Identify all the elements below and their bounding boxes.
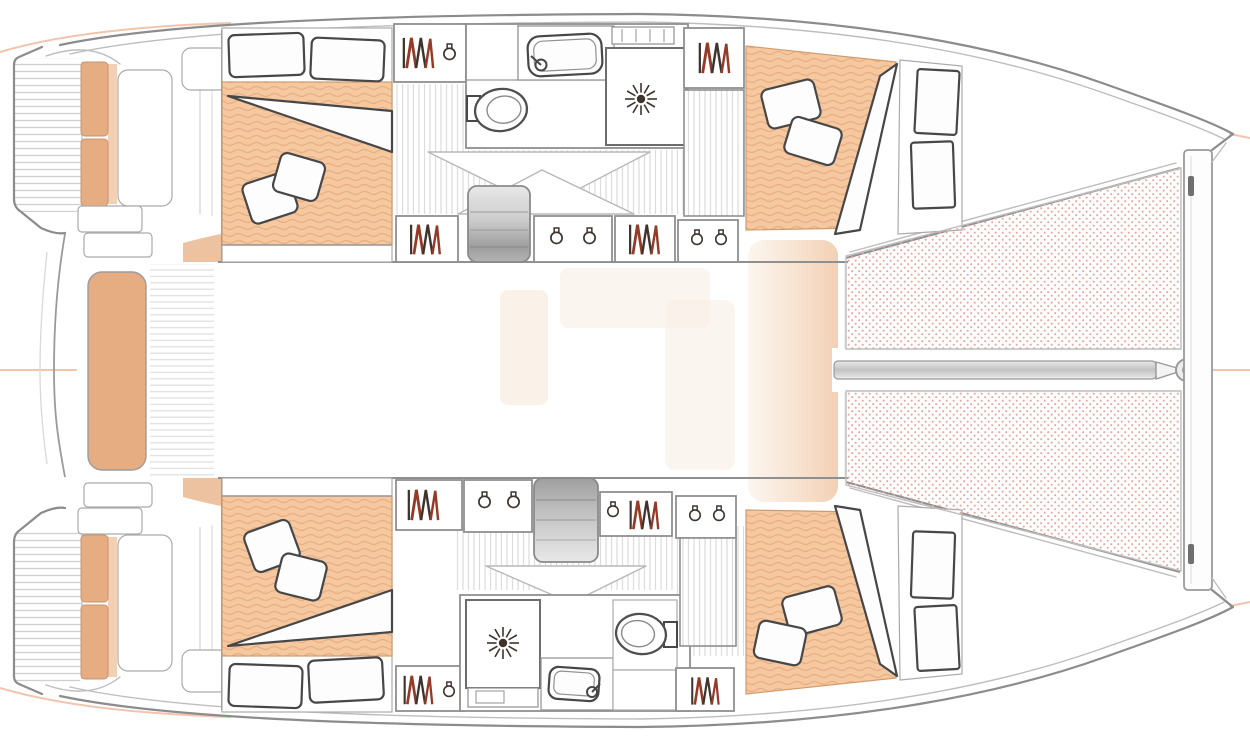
transom-seat-sliver [108,64,117,204]
saloon [183,233,845,507]
cockpit-deck-planks [150,264,214,476]
helm-console [118,535,172,671]
cockpit-step [78,206,142,232]
crossbeam-bracket [1188,544,1194,564]
saloon-ghost-seat [665,300,735,470]
storage-locker [678,220,738,262]
crossbeam-bracket [1188,176,1194,196]
foot-cushion [228,664,302,709]
transom-seat-cushion [81,139,108,206]
transom-seat-sliver [108,537,117,677]
forward-crossbeam [1184,150,1212,590]
helm-console [118,70,172,206]
cockpit-aft-edge [54,234,65,477]
trampoline-net-upper [846,168,1181,349]
starboard-head [460,595,690,711]
storage-locker [534,216,612,262]
starboard-aft-cabin [222,478,392,712]
headboard-cushion [228,33,304,78]
cockpit-step [84,483,152,507]
saloon-ghost-galley [500,290,548,405]
transom-starboard [78,483,228,692]
headboard-cushion [310,37,385,81]
transom-port [78,48,228,257]
transom-seat-cushion [81,605,108,679]
slatted-dresser [680,538,736,646]
vent-grate [612,27,674,44]
shelf-cushion [911,531,955,598]
cockpit-corner-seat-upper [183,233,226,262]
shelf-cushion [911,141,955,208]
counter [613,670,677,710]
cockpit-bench [88,272,146,470]
wardrobe [396,216,458,262]
bowsprit [834,361,1156,379]
cockpit-step [84,233,152,257]
shelf-cushion [914,69,959,135]
floorplan-drawing [0,0,1250,741]
trampoline-net-lower [846,391,1181,571]
cockpit-step [78,508,142,534]
slatted-dresser [684,90,744,216]
storage-locker [676,496,736,538]
cockpit-corner-seat-lower [183,478,226,507]
catamaran-floorplan [0,0,1250,741]
saloon-forward-lounge-pad [748,240,838,502]
companionway-steps [468,186,530,262]
storage-locker [464,480,532,532]
port-forward-cabin [684,28,962,234]
aft-cockpit [40,234,214,477]
transom-seat-cushion [81,62,108,136]
port-aft-cabin [222,28,392,262]
foot-cushion [308,657,384,703]
transom-seat-cushion [81,535,108,602]
foredeck [832,134,1233,607]
davit-arc [40,252,47,464]
shelf-cushion [914,605,959,671]
port-head [466,24,688,148]
